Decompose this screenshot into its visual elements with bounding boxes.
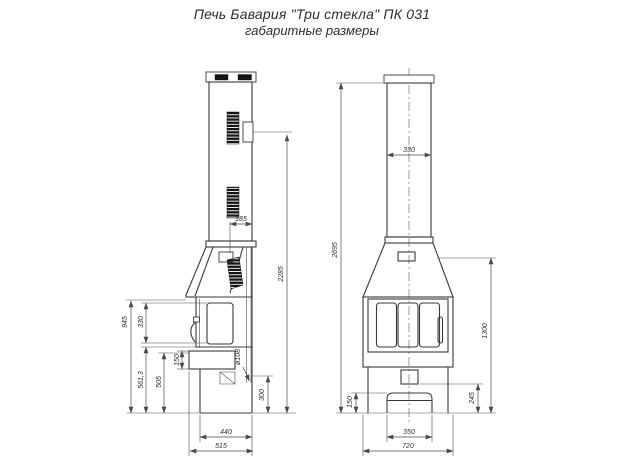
title-line-2: габаритные размеры bbox=[0, 23, 624, 38]
dim-side-440: 440 bbox=[220, 429, 232, 436]
front-hood-port bbox=[398, 252, 415, 261]
side-view: 185 2285 945 330 561,3 505 150 ø108 300 … bbox=[122, 72, 296, 456]
front-chimney-cap bbox=[384, 75, 434, 83]
dim-front-2695: 2695 bbox=[332, 242, 339, 259]
dim-side-515: 515 bbox=[215, 443, 227, 450]
dim-side-185: 185 bbox=[235, 216, 247, 223]
front-ash-drawer bbox=[387, 393, 432, 413]
side-grille-upper-icon bbox=[227, 112, 239, 144]
dim-side-300: 300 bbox=[259, 389, 266, 401]
dim-side-330: 330 bbox=[138, 316, 145, 328]
side-grille-lower-icon bbox=[227, 187, 239, 218]
dim-front-245: 245 bbox=[469, 392, 476, 405]
drawing-title: Печь Бавария "Три стекла" ПК 031 габарит… bbox=[0, 6, 624, 38]
side-base bbox=[200, 369, 252, 413]
side-cap-vent-left bbox=[215, 75, 228, 81]
side-hood-port bbox=[219, 252, 233, 262]
dim-side-2285: 2285 bbox=[278, 266, 285, 283]
drawing-canvas: 185 2285 945 330 561,3 505 150 ø108 300 … bbox=[0, 0, 624, 460]
dim-side-561-3: 561,3 bbox=[138, 371, 145, 389]
side-cap-vent-right bbox=[238, 75, 252, 81]
dim-side-d108: ø108 bbox=[235, 349, 242, 365]
side-shelf bbox=[189, 351, 235, 369]
front-glass-center bbox=[398, 303, 418, 347]
dim-front-150: 150 bbox=[347, 396, 354, 408]
side-hood-inner-edge bbox=[195, 247, 213, 296]
dim-side-150: 150 bbox=[174, 354, 181, 366]
front-handle-icon bbox=[438, 317, 443, 343]
side-flue-outlet bbox=[243, 122, 253, 142]
front-view: 330 2695 1300 245 150 350 720 bbox=[332, 68, 496, 456]
front-hood bbox=[363, 243, 453, 297]
side-hood-band bbox=[206, 241, 256, 247]
dim-side-945: 945 bbox=[122, 316, 129, 328]
side-handle-icon bbox=[191, 322, 196, 342]
side-window bbox=[207, 303, 233, 344]
dim-front-720: 720 bbox=[402, 443, 414, 450]
side-pipe-elbow bbox=[220, 372, 235, 384]
front-glass-right bbox=[420, 303, 440, 347]
side-handle-pivot bbox=[194, 317, 200, 322]
dim-front-330: 330 bbox=[403, 147, 415, 154]
drawing-page: Печь Бавария "Три стекла" ПК 031 габарит… bbox=[0, 0, 624, 460]
dim-front-1300: 1300 bbox=[482, 323, 489, 339]
title-line-1: Печь Бавария "Три стекла" ПК 031 bbox=[0, 6, 624, 22]
dim-side-505: 505 bbox=[156, 376, 163, 388]
dim-front-350: 350 bbox=[403, 429, 415, 436]
front-base-duct bbox=[401, 370, 418, 384]
front-glass-left bbox=[377, 303, 397, 347]
front-door-frame bbox=[368, 299, 448, 352]
